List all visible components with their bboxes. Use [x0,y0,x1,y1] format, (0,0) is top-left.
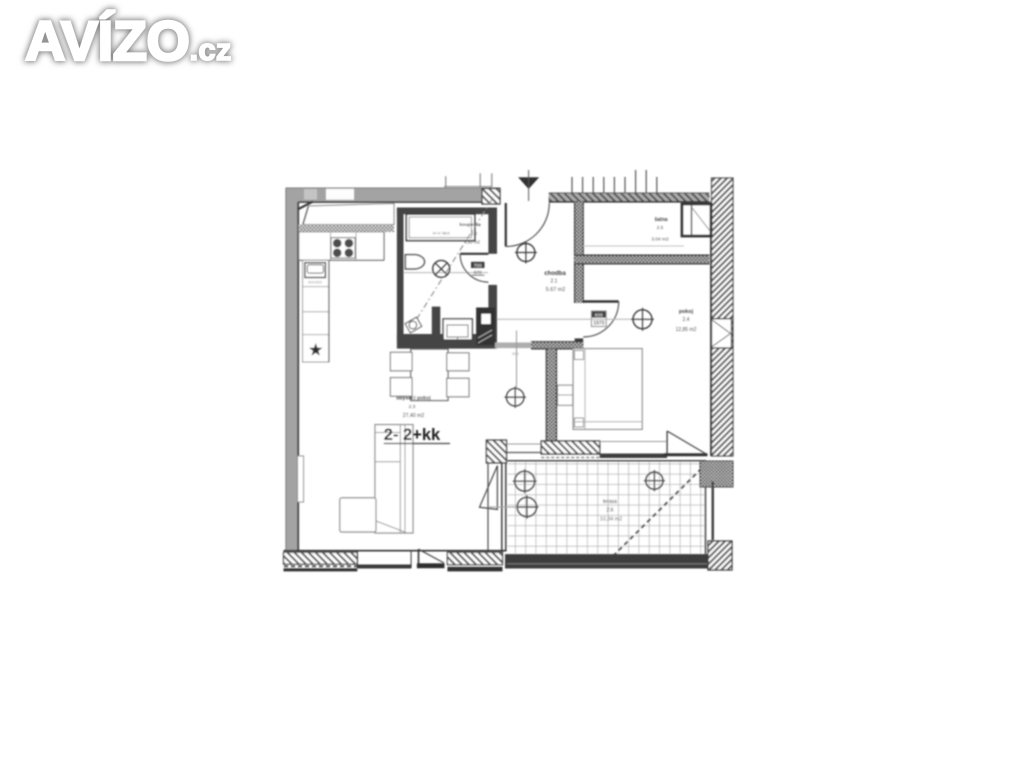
svg-text:2.5: 2.5 [657,225,664,230]
svg-text:600x500: 600x500 [308,281,322,285]
svg-text:900: 900 [512,351,519,356]
svg-text:2.6: 2.6 [607,508,614,514]
svg-text:800: 800 [595,312,603,318]
svg-text:10,34 m2: 10,34 m2 [600,517,622,523]
svg-text:terasa: terasa [603,499,617,505]
svg-text:K+V 36/3: K+V 36/3 [433,231,450,236]
svg-text:šatna: šatna [654,217,667,223]
svg-text:pokoj: pokoj [679,309,694,315]
svg-text:12,85 m2: 12,85 m2 [676,327,697,333]
svg-text:2.1: 2.1 [551,279,558,285]
svg-text:4,50 m2: 4,50 m2 [464,240,480,245]
svg-text:2.4: 2.4 [683,317,690,323]
svg-text:obývací pokoj: obývací pokoj [396,396,431,402]
svg-text:chodba: chodba [544,271,566,277]
svg-text:1970: 1970 [593,321,604,327]
svg-text:700: 700 [474,263,482,269]
svg-text:2- 2+kk: 2- 2+kk [384,426,441,444]
svg-text:5.67 m2: 5.67 m2 [546,287,565,293]
svg-text:27,40 m2: 27,40 m2 [403,413,425,419]
svg-text:2.2: 2.2 [471,231,478,236]
svg-text:2.3: 2.3 [409,404,416,410]
svg-text:3.04 m2: 3.04 m2 [651,237,669,243]
